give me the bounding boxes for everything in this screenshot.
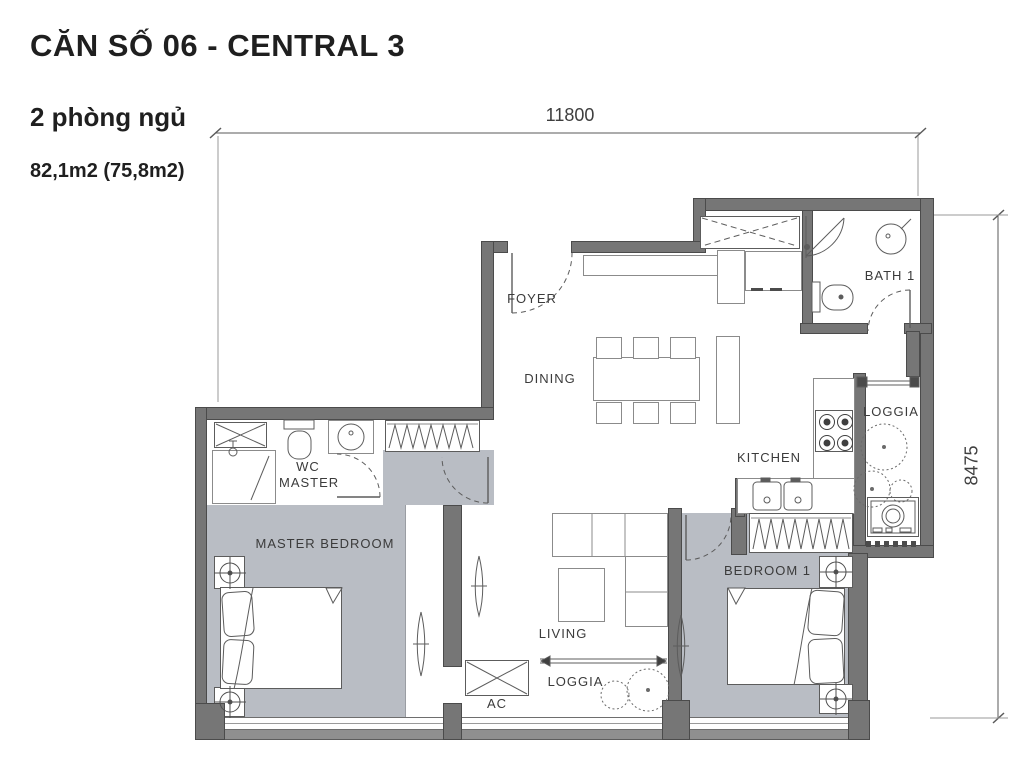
door-arc-bedroom1 xyxy=(686,515,731,560)
ac-x-icon xyxy=(467,662,527,694)
room-label-dining: DINING xyxy=(510,371,590,387)
dimension-width-label: 11800 xyxy=(535,105,605,126)
room-label-ac: AC xyxy=(467,696,527,712)
room-label-bedroom1: BEDROOM 1 xyxy=(695,563,840,579)
wc-basin-icon xyxy=(338,424,364,450)
sofa-cushion-lines xyxy=(592,513,668,592)
bath1-toilet-icon xyxy=(812,282,853,312)
floor-plan-page: CĂN SỐ 06 - CENTRAL 3 2 phòng ngủ 82,1m2… xyxy=(0,0,1024,768)
room-label-loggia-bottom: LOGGIA xyxy=(528,674,623,690)
washing-machine-drum-icon xyxy=(871,501,915,533)
bedroom1-bed-pillows-icon xyxy=(728,588,844,685)
room-label-loggia-top: LOGGIA xyxy=(852,404,930,420)
loggia-top-window-icon xyxy=(857,377,919,387)
room-label-living: LIVING xyxy=(518,626,608,642)
room-label-foyer: FOYER xyxy=(497,291,567,307)
room-label-wc-master: WC MASTER xyxy=(279,459,337,492)
fridge-handles-icon xyxy=(751,288,782,291)
door-arc-wc-master xyxy=(337,454,380,497)
dimension-lines xyxy=(210,128,1008,723)
bath1-basin-icon xyxy=(876,219,911,254)
stove-burners-icon xyxy=(820,415,853,451)
door-arc-master-bedroom xyxy=(442,457,488,503)
bedroom1-wardrobe-hangers-icon xyxy=(751,518,851,549)
entry-cabinet-x-icon xyxy=(702,218,797,246)
kitchen-sink-icon xyxy=(753,478,812,510)
bath1-shower-icon xyxy=(805,216,845,258)
dimension-height-label: 8475 xyxy=(962,431,983,501)
loggia-sliding-door-icon xyxy=(540,656,667,666)
wc-shower-head-icon xyxy=(229,441,269,500)
room-label-master-bedroom: MASTER BEDROOM xyxy=(240,536,410,552)
wc-toilet-icon xyxy=(284,420,314,459)
room-label-bath1: BATH 1 xyxy=(850,268,930,284)
room-label-kitchen: KITCHEN xyxy=(723,450,815,466)
master-wardrobe-hangers-icon xyxy=(387,424,478,448)
door-arc-bath1 xyxy=(868,290,910,331)
shaft-x-icon xyxy=(216,424,265,446)
master-bed-pillows-icon xyxy=(222,588,342,689)
